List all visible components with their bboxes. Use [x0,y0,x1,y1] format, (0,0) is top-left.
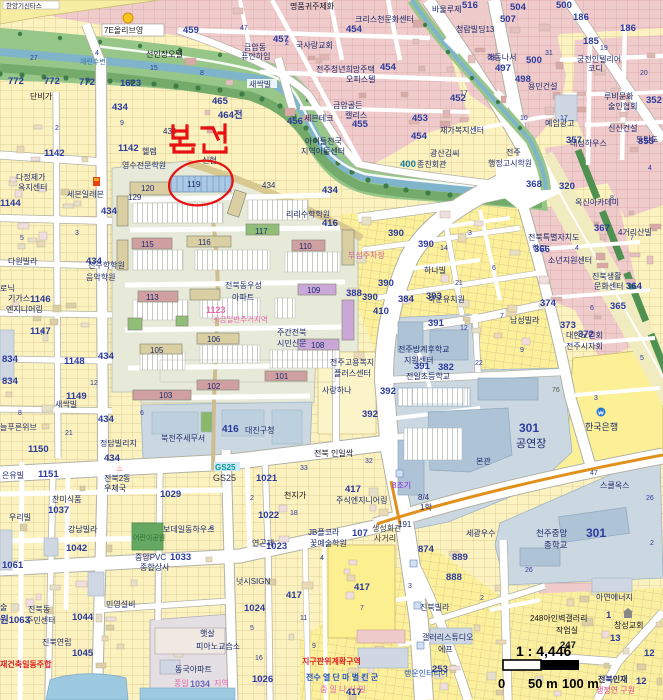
svg-text:민영설비: 민영설비 [106,599,135,609]
svg-text:천지가: 천지가 [284,490,307,500]
svg-text:햇살: 햇살 [200,628,215,638]
svg-text:1026: 1026 [252,674,273,685]
svg-text:1148: 1148 [64,356,85,367]
svg-text:22: 22 [475,360,483,367]
svg-text:7: 7 [360,605,364,612]
svg-text:107: 107 [352,528,368,539]
svg-text:생성회관: 생성회관 [372,523,402,533]
svg-text:신신건설: 신신건설 [608,123,637,133]
svg-text:루비문화: 루비문화 [604,92,634,101]
svg-text:체련수변: 체련수변 [80,57,106,66]
svg-text:113: 113 [146,293,159,302]
svg-text:434: 434 [98,414,115,425]
svg-text:1151: 1151 [38,469,59,480]
svg-text:우체국: 우체국 [104,483,126,493]
svg-text:357: 357 [566,135,582,146]
svg-text:834: 834 [2,354,19,365]
svg-text:18: 18 [290,510,298,517]
svg-text:전북 인일싹: 전북 인일싹 [314,448,354,458]
svg-text:헬렘: 헬렘 [142,146,157,156]
svg-text:코디: 코디 [588,64,603,73]
svg-text:76: 76 [552,387,560,394]
svg-text:아파트: 아파트 [232,292,254,302]
svg-text:1146: 1146 [30,294,51,305]
svg-text:북문유치원: 북문유치원 [428,295,465,304]
svg-text:지역: 지역 [214,678,229,688]
svg-text:106: 106 [207,335,221,344]
svg-text:로닉: 로닉 [0,284,15,293]
svg-text:전북특별자치도: 전북특별자치도 [528,232,580,242]
svg-text:GS25: GS25 [213,473,236,483]
svg-text:26: 26 [646,495,654,502]
svg-text:3: 3 [75,230,79,237]
svg-text:다원빌라: 다원빌라 [8,256,38,266]
svg-text:320: 320 [559,181,575,192]
svg-text:4: 4 [575,245,579,252]
svg-text:186: 186 [620,23,636,34]
svg-text:1623: 1623 [120,78,141,89]
svg-text:기가스: 기가스 [8,294,30,303]
svg-text:청람빌딩13: 청람빌딩13 [456,24,495,34]
svg-text:248아인벽갤러리: 248아인벽갤러리 [530,613,588,623]
svg-text:1037: 1037 [48,505,69,516]
svg-text:우리빌: 우리빌 [9,512,31,522]
svg-text:103: 103 [159,391,173,400]
svg-text:9: 9 [312,643,316,650]
svg-text:주민센터: 주민센터 [26,615,55,625]
svg-text:1042: 1042 [66,543,87,554]
svg-text:스쿨옥스: 스쿨옥스 [600,481,629,490]
svg-text:2: 2 [250,495,254,502]
svg-text:9: 9 [520,347,524,354]
svg-text:772: 772 [44,76,60,87]
svg-text:26: 26 [525,567,533,574]
svg-text:영수전문학원: 영수전문학원 [122,160,166,170]
svg-text:390: 390 [378,278,394,289]
svg-text:명품귀주제화: 명품귀주제화 [290,1,335,11]
svg-text:1061: 1061 [2,560,24,571]
svg-text:플러스센터: 플러스센터 [334,368,371,378]
svg-text:31: 31 [545,50,553,57]
svg-text:2: 2 [650,540,654,547]
svg-text:넛시SIGN: 넛시SIGN [236,577,271,586]
svg-text:366: 366 [534,244,550,255]
svg-text:454: 454 [411,131,428,142]
svg-text:한양기신타스: 한양기신타스 [6,1,42,10]
svg-text:갤러리스튜디오: 갤러리스튜디오 [422,632,474,642]
svg-text:동국아파트: 동국아파트 [175,664,212,674]
svg-text:도딩도: 도딩도 [636,134,658,144]
svg-text:천주중앙: 천주중앙 [536,528,567,538]
svg-text:7: 7 [500,313,504,320]
svg-text:388: 388 [346,288,362,299]
svg-text:1033: 1033 [170,552,191,563]
svg-text:8: 8 [18,410,22,417]
svg-text:금암동: 금암동 [244,42,266,52]
svg-text:185: 185 [583,36,600,47]
svg-text:392: 392 [380,386,396,397]
svg-text:301: 301 [519,421,539,435]
svg-text:417: 417 [354,582,370,593]
svg-text:14: 14 [440,245,448,252]
svg-text:1142: 1142 [44,148,65,159]
svg-text:108: 108 [311,341,325,350]
svg-text:1034: 1034 [190,679,210,689]
svg-text:434: 434 [98,351,115,362]
svg-text:434: 434 [112,102,129,113]
svg-text:연곤체: 연곤체 [252,538,274,548]
svg-text:술인협회: 술인협회 [608,101,637,111]
svg-text:1144: 1144 [0,198,21,209]
svg-text:다정제가: 다정제가 [16,172,46,182]
svg-text:374: 374 [540,298,557,309]
svg-text:1학: 1학 [420,502,432,512]
svg-text:전수 열 단 마 별 킨 군: 전수 열 단 마 별 킨 군 [306,672,379,682]
svg-text:390: 390 [388,228,404,239]
svg-text:15: 15 [150,65,158,72]
svg-text:공연장: 공연장 [516,437,546,450]
svg-text:453: 453 [412,113,428,124]
svg-text:6: 6 [590,305,594,312]
svg-text:3: 3 [408,583,412,590]
svg-text:16: 16 [255,655,263,662]
svg-text:전주방계후학교: 전주방계후학교 [398,344,450,354]
svg-text:417: 417 [345,484,361,495]
svg-text:454: 454 [346,24,363,35]
svg-text:옥지센터: 옥지센터 [18,182,47,192]
svg-text:1123: 1123 [206,305,226,315]
svg-text:390: 390 [418,239,434,250]
svg-text:어린이공원: 어린이공원 [133,533,165,542]
svg-text:20: 20 [640,70,648,77]
svg-text:352: 352 [646,95,662,106]
svg-text:382: 382 [438,362,454,373]
svg-text:434: 434 [101,206,118,217]
svg-text:부섬주차장: 부섬주차장 [348,250,385,260]
svg-text:종친회관: 종친회관 [417,159,447,169]
svg-text:₩: ₩ [598,411,604,417]
svg-text:대진구청: 대진구청 [245,425,274,435]
svg-text:391: 391 [428,318,445,329]
svg-text:진북연립: 진북연립 [42,637,71,647]
svg-text:110: 110 [299,242,312,251]
svg-text:북전주세무서: 북전주세무서 [161,433,205,443]
svg-text:본관: 본관 [476,456,491,466]
svg-text:8/4: 8/4 [418,493,430,502]
svg-text:GS25: GS25 [215,463,236,472]
svg-text:행정고시학원: 행정고시학원 [488,158,532,168]
svg-text:전북인재: 전북인재 [598,674,627,684]
svg-text:작업실: 작업실 [556,625,578,635]
svg-text:2: 2 [55,125,59,132]
svg-text:373: 373 [560,320,576,331]
svg-text:강남빌라: 강남빌라 [68,524,98,534]
svg-text:7: 7 [630,235,634,242]
svg-text:풍일: 풍일 [174,679,189,688]
svg-text:253: 253 [432,664,448,675]
svg-text:8: 8 [200,70,204,77]
svg-text:32: 32 [365,458,373,465]
svg-text:10: 10 [520,115,528,122]
svg-text:456: 456 [287,116,303,127]
svg-text:8조기: 8조기 [392,481,411,490]
svg-text:1029: 1029 [160,489,181,500]
svg-text:457: 457 [273,34,289,45]
svg-text:17: 17 [560,115,568,122]
svg-text:진북2동: 진북2동 [104,473,131,483]
svg-text:남성빌라: 남성빌라 [510,315,540,325]
svg-text:JB플코라: JB플코라 [308,528,340,537]
svg-text:8: 8 [210,525,214,532]
svg-text:416: 416 [222,424,239,435]
svg-text:전주청년희망주택: 전주청년희망주택 [316,64,375,74]
svg-text:♨: ♨ [116,464,123,473]
svg-text:1 : 4,446: 1 : 4,446 [516,643,571,659]
svg-text:4: 4 [320,555,324,562]
svg-text:은유빌: 은유빌 [2,470,24,480]
svg-text:오피스텔: 오피스텔 [346,75,375,84]
svg-text:12: 12 [644,648,655,659]
svg-text:368: 368 [526,179,542,190]
svg-text:1044: 1044 [72,612,94,623]
svg-text:1024: 1024 [244,603,266,614]
svg-text:4거리산빌: 4거리산빌 [618,227,652,237]
svg-text:국사랑교회: 국사랑교회 [296,40,333,50]
svg-text:129: 129 [128,193,142,202]
svg-text:301: 301 [586,526,606,540]
svg-text:종학교: 종학교 [544,540,568,550]
svg-text:지역아동센터: 지역아동센터 [301,146,345,156]
svg-text:전주: 전주 [506,147,521,157]
svg-text:12: 12 [90,380,98,387]
svg-text:문화센터: 문화센터 [594,281,623,291]
svg-text:102: 102 [207,382,221,391]
svg-text:생정연 구원: 생정연 구원 [596,685,635,695]
svg-text:전북동우성: 전북동우성 [225,280,262,290]
svg-text:퓨안하임: 퓨안하임 [241,51,270,61]
svg-text:용민건설: 용민건설 [528,81,557,91]
svg-text:365: 365 [610,301,627,312]
svg-text:1150: 1150 [28,444,49,455]
svg-text:5: 5 [250,625,254,632]
svg-text:410: 410 [373,306,389,317]
svg-text:주식엔지니어링: 주식엔지니어링 [336,495,388,505]
svg-text:417: 417 [286,590,302,601]
svg-text:1: 1 [606,610,612,621]
svg-text:6: 6 [492,265,496,272]
svg-text:11: 11 [300,615,307,622]
svg-text:8: 8 [610,195,614,202]
svg-text:19: 19 [600,45,608,52]
svg-text:13: 13 [610,633,621,644]
svg-text:464전: 464전 [218,109,243,121]
svg-text:전주시자회: 전주시자회 [566,341,603,351]
svg-text:늘푸른위브: 늘푸른위브 [0,423,37,432]
svg-text:384: 384 [398,294,415,305]
svg-text:꽃예술학원: 꽃예술학원 [310,538,347,548]
svg-text:3: 3 [594,395,598,402]
svg-text:33: 33 [300,465,308,472]
svg-text:3: 3 [468,230,472,237]
svg-text:772: 772 [8,76,24,87]
svg-text:504: 504 [510,2,527,13]
svg-text:772: 772 [79,77,95,88]
svg-text:7E올리브영: 7E올리브영 [104,25,143,35]
svg-text:창성교회: 창성교회 [614,621,643,630]
svg-text:4: 4 [648,165,652,172]
svg-text:재건축일동주합: 재건축일동주합 [0,659,52,669]
svg-text:12: 12 [636,676,647,687]
svg-text:엔지니어링: 엔지니어링 [6,304,43,314]
svg-text:367: 367 [594,223,610,234]
svg-text:에프: 에프 [438,645,453,654]
svg-text:세븐테크: 세븐테크 [304,114,333,123]
svg-text:1149: 1149 [66,391,87,402]
svg-text:100 m: 100 m [562,676,599,691]
svg-text:497: 497 [495,63,511,74]
svg-text:12: 12 [460,325,468,332]
svg-text:지구판위계확구역: 지구판위계확구역 [302,656,361,666]
svg-text:찬미식품: 찬미식품 [52,494,81,504]
svg-text:105: 105 [150,346,164,355]
svg-text:종합상사: 종합상사 [140,562,170,572]
svg-text:새싹빌: 새싹빌 [249,79,271,89]
svg-text:세광우수: 세광우수 [466,528,495,538]
svg-text:416: 416 [322,218,338,229]
svg-text:6: 6 [140,410,144,417]
svg-text:459: 459 [183,25,199,36]
svg-text:1142: 1142 [118,143,139,154]
svg-text:500: 500 [526,55,542,66]
svg-text:455: 455 [352,119,369,130]
svg-text:21: 21 [65,430,73,437]
svg-text:507: 507 [500,14,516,25]
svg-text:중앙PVC: 중앙PVC [135,552,166,562]
svg-text:1045: 1045 [72,648,94,659]
svg-text:중 일 나 사 빌: 중 일 나 사 빌 [320,684,366,694]
svg-text:소년지원센터: 소년지원센터 [548,255,592,265]
svg-text:지원센터: 지원센터 [404,355,433,365]
svg-text:세븐일레븐: 세븐일레븐 [67,190,104,199]
svg-text:0: 0 [498,676,505,691]
svg-text:516: 516 [462,0,478,11]
svg-text:5: 5 [640,355,644,362]
svg-text:454: 454 [380,62,397,73]
svg-text:101: 101 [275,372,289,381]
svg-text:500: 500 [556,0,572,11]
svg-text:186: 186 [573,12,589,23]
svg-text:4: 4 [95,50,99,57]
svg-text:사랑하나: 사랑하나 [322,385,352,395]
svg-text:술: 술 [0,602,7,612]
svg-text:주간전북: 주간전북 [277,327,306,337]
svg-text:2: 2 [480,595,484,602]
svg-text:④금일반주거지역: ④금일반주거지역 [212,314,268,324]
svg-text:진북생활: 진북생활 [592,271,622,281]
svg-text:시민신문: 시민신문 [277,338,306,348]
svg-text:109: 109 [307,286,321,295]
svg-text:음악학원: 음악학원 [86,272,115,282]
svg-text:119: 119 [187,179,201,189]
svg-text:진북빌라: 진북빌라 [420,602,450,612]
svg-text:7: 7 [40,330,44,337]
svg-text:889: 889 [452,552,468,563]
svg-text:392: 392 [362,409,378,420]
svg-text:17: 17 [460,90,468,97]
svg-text:선인장오텔: 선인장오텔 [146,49,183,59]
svg-text:보데일동하우스: 보데일동하우스 [163,524,215,534]
svg-text:120: 120 [141,184,155,193]
svg-text:364: 364 [626,281,643,292]
svg-text:정담빌리지: 정담빌리지 [100,438,137,448]
svg-text:115: 115 [141,240,154,249]
svg-text:하나빌: 하나빌 [424,265,446,275]
svg-text:27: 27 [30,55,38,62]
svg-text:47: 47 [590,470,598,477]
svg-text:아연에너지: 아연에너지 [596,592,633,602]
svg-text:50 m: 50 m [528,676,558,691]
svg-text:434: 434 [322,185,339,196]
svg-text:광산김씨: 광산김씨 [430,148,459,158]
svg-text:116: 116 [198,238,211,247]
svg-text:바울루제: 바울루제 [432,4,461,14]
svg-text:434: 434 [262,181,276,190]
svg-text:사거리: 사거리 [374,534,396,543]
svg-text:434: 434 [86,256,103,267]
svg-text:21: 21 [455,280,463,287]
svg-text:23: 23 [488,55,496,62]
svg-text:834: 834 [2,376,19,387]
svg-text:390: 390 [362,292,378,303]
svg-text:372: 372 [578,329,594,340]
svg-text:117: 117 [255,227,268,236]
svg-text:단비가: 단비가 [30,91,53,101]
svg-text:1022: 1022 [258,510,279,521]
svg-text:궁전인텔리어: 궁전인텔리어 [577,54,621,64]
svg-text:434: 434 [104,453,121,464]
svg-text:9: 9 [120,120,124,127]
svg-text:금암골든: 금암골든 [333,100,362,110]
svg-text:874: 874 [418,544,435,555]
svg-text:47: 47 [240,25,248,32]
svg-text:498: 498 [515,74,531,85]
svg-text:크리스천문화센터: 크리스천문화센터 [355,14,414,24]
svg-text:5: 5 [20,235,24,242]
svg-text:한국은행: 한국은행 [585,421,618,432]
svg-text:888: 888 [446,572,462,583]
svg-text:전주고용복지: 전주고용복지 [330,357,374,367]
svg-text:원1063: 원1063 [0,614,30,626]
svg-text:400: 400 [400,159,416,170]
svg-text:진북동: 진북동 [28,604,50,614]
svg-text:아이들천국: 아이들천국 [305,136,342,146]
svg-text:재가복지센터: 재가복지센터 [440,125,484,135]
svg-text:피아노교습소: 피아노교습소 [196,641,240,651]
svg-text:465: 465 [212,96,229,107]
svg-text:1021: 1021 [256,473,278,484]
